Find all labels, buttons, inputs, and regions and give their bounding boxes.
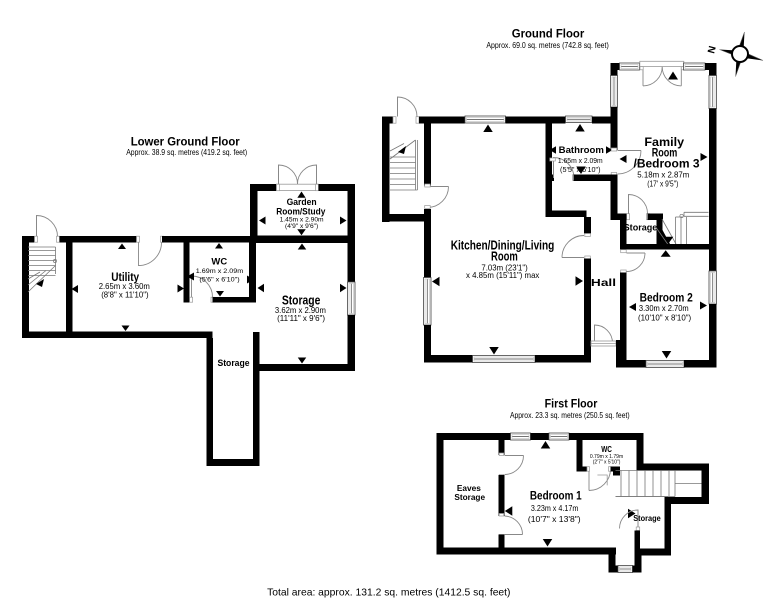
- svg-text:(10'7" x 13'8"): (10'7" x 13'8"): [528, 514, 581, 524]
- svg-text:Approx. 23.3 sq. metres (250.5: Approx. 23.3 sq. metres (250.5 sq. feet): [510, 410, 630, 420]
- svg-text:(10'10" x 8'10"): (10'10" x 8'10"): [638, 312, 691, 322]
- svg-text:WC: WC: [601, 445, 612, 454]
- svg-text:Approx. 69.0 sq. metres (742.8: Approx. 69.0 sq. metres (742.8 sq. feet): [486, 40, 609, 50]
- svg-text:(2'7" x 5'10"): (2'7" x 5'10"): [593, 460, 621, 466]
- svg-text:(11'11" x 9'6"): (11'11" x 9'6"): [277, 313, 325, 323]
- svg-text:Bedroom 1: Bedroom 1: [530, 489, 582, 503]
- svg-text:Total area: approx. 131.2 sq.: Total area: approx. 131.2 sq. metres (14…: [267, 587, 510, 599]
- svg-text:Hall: Hall: [591, 277, 616, 289]
- svg-text:Storage: Storage: [624, 223, 658, 234]
- svg-text:Bathroom: Bathroom: [559, 145, 604, 156]
- svg-text:Storage: Storage: [633, 514, 661, 523]
- svg-text:WC: WC: [211, 257, 227, 267]
- svg-text:(5'6" x 6'10"): (5'6" x 6'10"): [199, 277, 239, 284]
- svg-text:/Bedroom 3: /Bedroom 3: [634, 156, 700, 170]
- svg-text:Approx. 38.9 sq. metres (419.2: Approx. 38.9 sq. metres (419.2 sq. feet): [126, 147, 247, 157]
- svg-text:Room: Room: [491, 250, 518, 264]
- svg-text:(8'8" x 11'10"): (8'8" x 11'10"): [101, 290, 149, 300]
- svg-text:1.65m x 2.09m: 1.65m x 2.09m: [558, 156, 603, 165]
- svg-text:(17' x 9'5"): (17' x 9'5"): [647, 178, 678, 188]
- svg-text:x 4.85m (15'11") max: x 4.85m (15'11") max: [466, 270, 540, 280]
- svg-text:Storage: Storage: [454, 492, 485, 502]
- svg-text:(4'9" x 9'6"): (4'9" x 9'6"): [285, 223, 318, 230]
- svg-text:First Floor: First Floor: [545, 397, 598, 411]
- svg-text:Room/Study: Room/Study: [276, 206, 326, 216]
- svg-text:3.23m x 4.17m: 3.23m x 4.17m: [531, 503, 578, 513]
- svg-text:Ground Floor: Ground Floor: [512, 26, 585, 40]
- svg-text:1.69m x 2.09m: 1.69m x 2.09m: [196, 268, 244, 275]
- svg-text:Storage: Storage: [217, 357, 249, 368]
